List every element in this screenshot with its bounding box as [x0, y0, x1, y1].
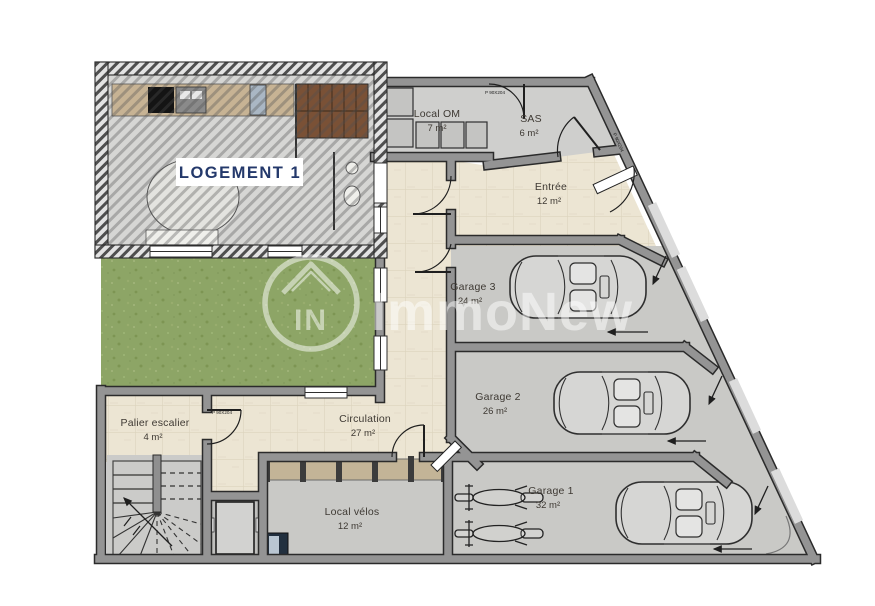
room-label-local-om: Local OM: [414, 108, 461, 120]
elevator: [209, 492, 261, 554]
window-logement-corridor: [374, 207, 387, 233]
room-area-palier: 4 m²: [144, 432, 163, 443]
door-logement-entry: [374, 163, 387, 203]
room-area-local-om: 7 m²: [428, 123, 447, 134]
floor-plan: Local OM 7 m² SAS 6 m² Entrée 12 m² Gara…: [0, 0, 875, 606]
utility-box: [266, 533, 288, 557]
room-area-local-velos: 12 m²: [338, 521, 362, 532]
window-garden-south-2: [268, 246, 302, 257]
room-garden: [101, 255, 377, 389]
door-spec-palier: P 90X204: [212, 410, 233, 415]
room-label-palier: Palier escalier: [121, 417, 190, 429]
room-area-sas: 6 m²: [520, 128, 539, 139]
floor-plan-page: Local OM 7 m² SAS 6 m² Entrée 12 m² Gara…: [0, 0, 875, 606]
room-label-garage-1: Garage 1: [528, 485, 573, 497]
room-area-entree: 12 m²: [537, 196, 561, 207]
stair-spine-wall: [153, 455, 161, 512]
room-label-circulation: Circulation: [339, 413, 391, 425]
door-spec-om: P 90X204: [485, 90, 506, 95]
room-area-circulation: 27 m²: [351, 428, 375, 439]
room-label-local-velos: Local vélos: [325, 506, 380, 518]
room-label-sas: SAS: [520, 113, 542, 125]
room-area-garage-2: 26 m²: [483, 406, 507, 417]
unit-title-text: LOGEMENT 1: [179, 164, 301, 182]
car-garage-2: [554, 372, 690, 434]
room-label-garage-2: Garage 2: [475, 391, 520, 403]
brand-watermark-text: ImmoNew: [371, 282, 633, 342]
window-garden-bottom: [305, 387, 347, 398]
watermark-logo-initials: IN: [294, 304, 328, 337]
room-area-garage-1: 32 m²: [536, 500, 560, 511]
room-label-entree: Entrée: [535, 181, 567, 193]
window-garden-south: [150, 246, 212, 257]
elevator-cabin: [216, 502, 254, 554]
unit-title: LOGEMENT 1: [176, 158, 303, 186]
car-garage-1: [616, 482, 752, 544]
